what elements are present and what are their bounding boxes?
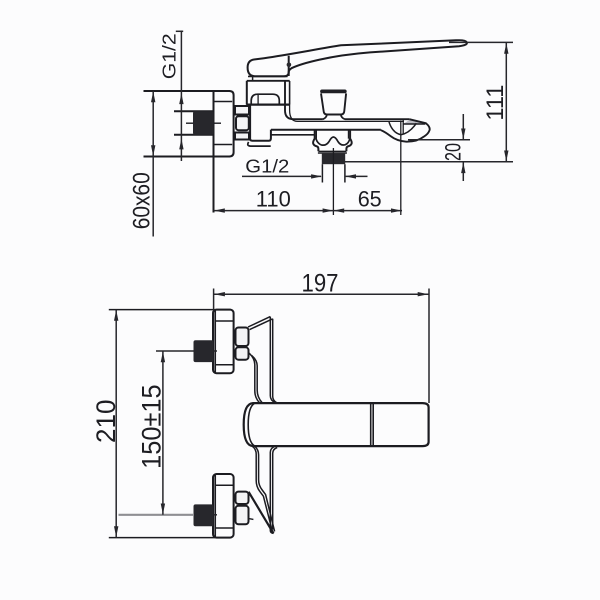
svg-text:111: 111 (482, 85, 509, 121)
svg-text:197: 197 (302, 270, 339, 298)
svg-text:210: 210 (91, 400, 121, 444)
svg-text:65: 65 (358, 187, 382, 212)
svg-text:60x60: 60x60 (129, 172, 156, 229)
svg-text:20: 20 (441, 143, 466, 161)
svg-text:G1/2: G1/2 (160, 33, 180, 79)
svg-text:150±15: 150±15 (137, 384, 167, 469)
svg-text:G1/2: G1/2 (245, 157, 289, 177)
svg-text:110: 110 (256, 187, 291, 212)
